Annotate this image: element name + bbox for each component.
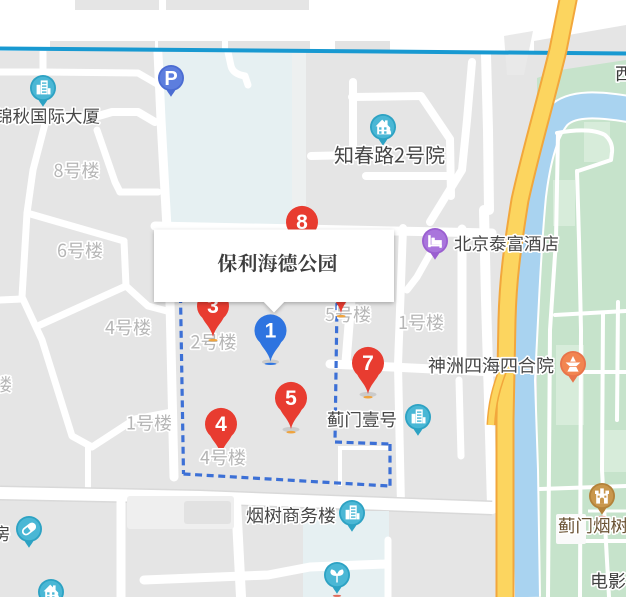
svg-text:1: 1 [265, 319, 277, 342]
svg-text:5: 5 [285, 387, 297, 410]
svg-text:4: 4 [215, 413, 227, 436]
svg-text:P: P [164, 68, 177, 90]
svg-text:7: 7 [362, 352, 374, 375]
